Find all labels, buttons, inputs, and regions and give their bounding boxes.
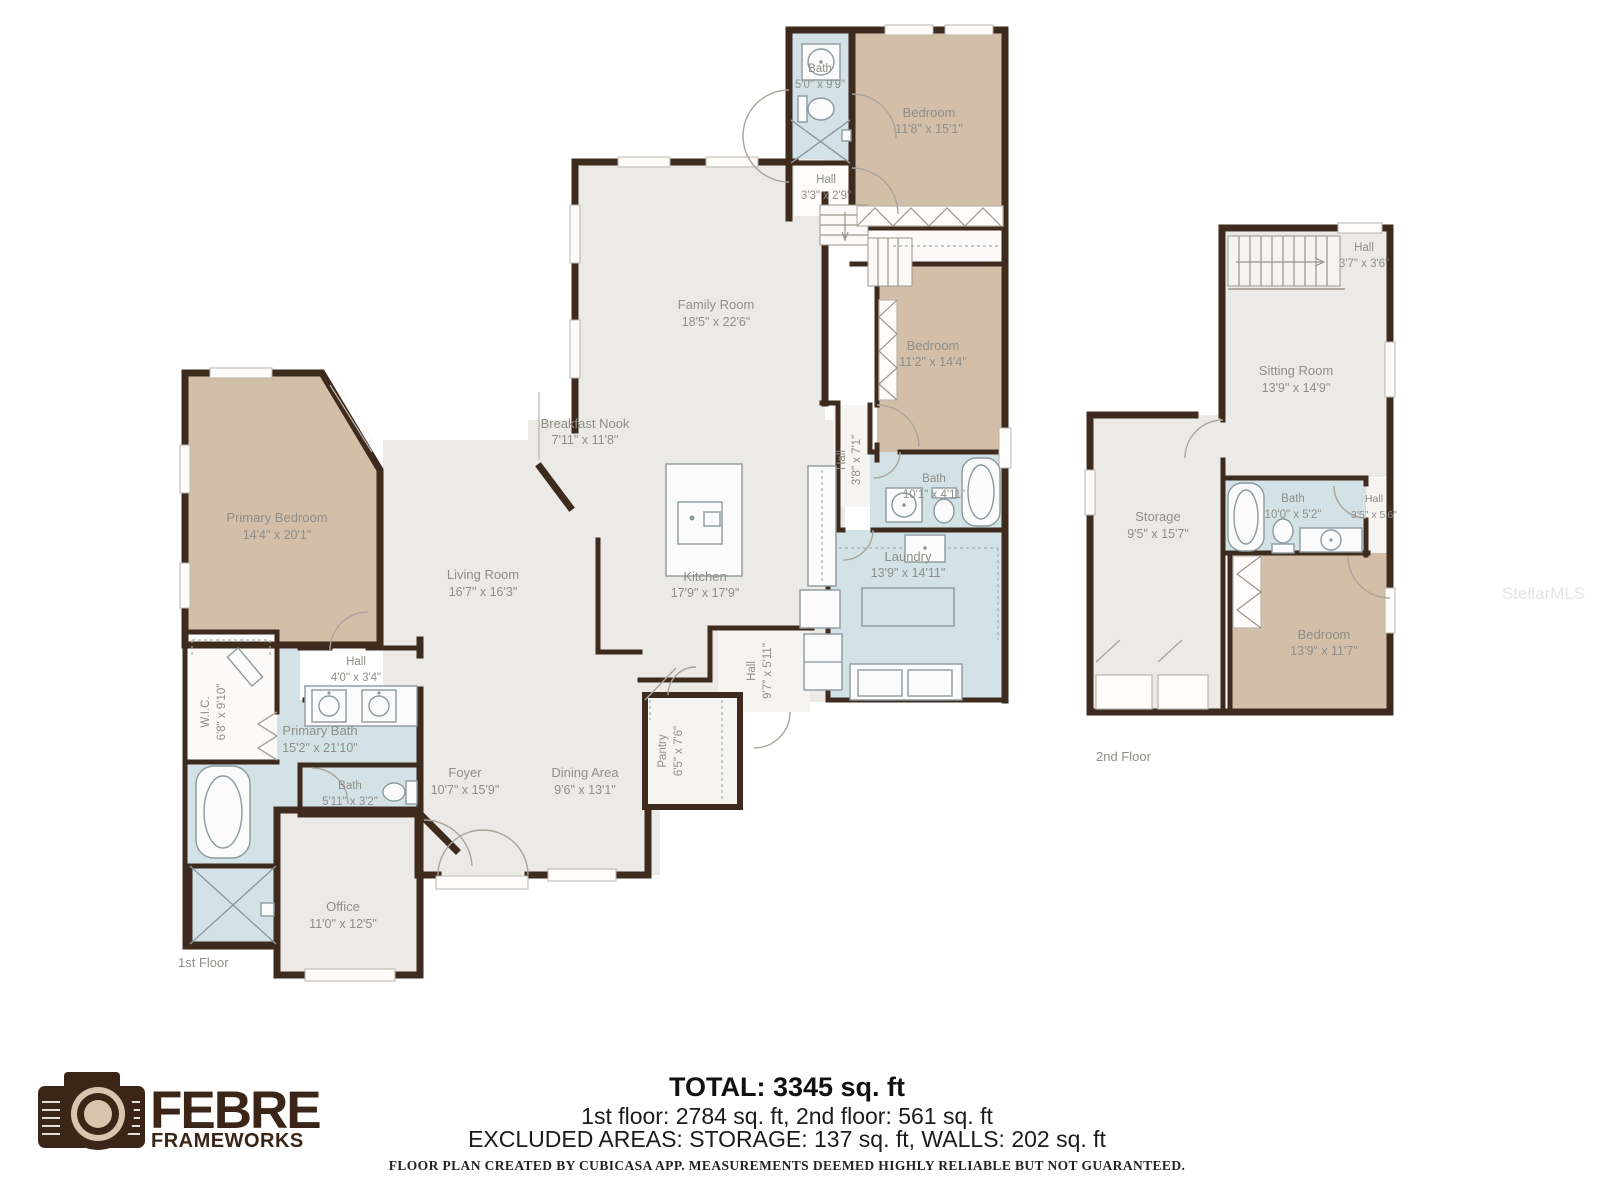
room-label: Dining Area	[551, 765, 619, 780]
double-vanity	[305, 686, 417, 726]
room-dims: 10'0" x 5'2"	[1265, 509, 1322, 521]
room-label: Family Room	[678, 297, 755, 312]
room-label: W.I.C.	[200, 696, 212, 727]
room-dims: 13'9" x 14'11"	[871, 566, 946, 580]
room-dims: 10'1" x 4'11"	[903, 489, 965, 501]
room-dims: 5'0" x 9'9"	[795, 79, 845, 91]
room-dims: 3'3" x 2'9"	[801, 190, 851, 202]
room-label: Bath	[808, 63, 832, 75]
room-dims: 3'5" x 5'6"	[1351, 509, 1397, 521]
room-dims: 5'11" x 3'2"	[322, 796, 378, 808]
room-dims: 17'9" x 17'9"	[671, 586, 740, 600]
room-office	[277, 810, 420, 975]
room-label: Bedroom	[907, 338, 960, 353]
room-label: Storage	[1135, 509, 1181, 524]
room-dims: 11'2" x 14'4"	[899, 355, 967, 369]
total-area-text: TOTAL: 3345 sq. ft	[669, 1072, 905, 1102]
room-dims: 13'9" x 14'9"	[1262, 381, 1331, 395]
room-label: Sitting Room	[1259, 363, 1333, 378]
room-label: Living Room	[447, 567, 519, 582]
room-label: Bath	[1281, 493, 1305, 505]
first-floor-caption: 1st Floor	[178, 955, 229, 970]
summary-footer: TOTAL: 3345 sq. ft 1st floor: 2784 sq. f…	[389, 1072, 1186, 1173]
wardrobe-bedroom-mid	[879, 300, 897, 400]
stairs-second-floor	[1228, 236, 1345, 289]
second-floor-caption: 2nd Floor	[1096, 749, 1152, 764]
room-label: Pantry	[657, 734, 669, 767]
camera-icon	[38, 1072, 145, 1150]
room-label: Hall	[346, 656, 366, 668]
room-label: Bedroom	[903, 105, 956, 120]
room-label: Primary Bedroom	[226, 510, 327, 525]
room-primary-bedroom	[185, 373, 380, 645]
room-dims: 6'8" x 9'10"	[216, 684, 228, 741]
room-dims: 11'0" x 12'5"	[309, 917, 377, 931]
room-dims: 13'9" x 11'7"	[1290, 644, 1358, 658]
wardrobe-bedroom-top	[857, 206, 1003, 226]
stellar-mls-watermark: StellarMLS	[1502, 584, 1585, 603]
room-dims: 4'0" x 3'4"	[331, 672, 381, 684]
room-label: Bedroom	[1298, 627, 1351, 642]
room-dims: 9'6" x 13'1"	[554, 783, 616, 797]
disclaimer-text: FLOOR PLAN CREATED BY CUBICASA APP. MEAS…	[389, 1158, 1186, 1173]
room-dims: 10'7" x 15'9"	[431, 783, 500, 797]
room-label: Office	[326, 899, 360, 914]
room-dims: 15'2" x 21'10"	[282, 741, 358, 755]
room-dims: 6'5" x 7'6"	[673, 726, 685, 776]
room-storage	[1090, 415, 1223, 712]
room-label: Bath	[922, 473, 946, 485]
room-dims: 7'11" x 11'8"	[552, 433, 619, 447]
room-label: Laundry	[885, 549, 932, 564]
toilet-icon	[1272, 544, 1294, 553]
room-label: Hall	[1354, 242, 1374, 254]
appliance-icon	[800, 590, 840, 628]
room-dims: 3'8" x 7'1"	[851, 435, 863, 485]
first-floor-plan: Bath 5'0" x 9'9" Bedroom 11'8" x 15'1" H…	[178, 25, 1011, 981]
room-label: Hall	[836, 450, 848, 470]
room-label: Kitchen	[683, 569, 726, 584]
logo-subname: FRAMEWORKS	[151, 1130, 304, 1152]
room-label: Hall	[816, 174, 836, 186]
room-label: Breakfast Nook	[541, 416, 630, 431]
toilet-icon	[406, 781, 417, 804]
room-label: Hall	[746, 661, 758, 681]
febre-frameworks-logo: FEBRE FRAMEWORKS	[38, 1072, 320, 1152]
room-dims: 3'7" x 3'6"	[1339, 258, 1389, 270]
room-label: Primary Bath	[282, 723, 357, 738]
room-wic	[185, 632, 277, 762]
second-floor-plan: Hall 3'7" x 3'6" Sitting Room 13'9" x 14…	[1085, 223, 1397, 764]
room-label: Foyer	[448, 765, 482, 780]
room-dims: 18'5" x 22'6"	[682, 315, 751, 329]
excluded-areas-text: EXCLUDED AREAS: STORAGE: 137 sq. ft, WAL…	[468, 1126, 1106, 1152]
room-dims: 11'8" x 15'1"	[895, 122, 963, 136]
room-dims: 16'7" x 16'3"	[449, 585, 518, 599]
room-dims: 9'5" x 15'7"	[1127, 527, 1189, 541]
room-dims: 9'7" x 5'11"	[762, 643, 774, 699]
toilet-icon	[798, 96, 807, 122]
room-label: Hall	[1365, 493, 1383, 505]
room-dims: 14'4" x 20'1"	[243, 528, 312, 542]
floor-plan-canvas: Bath 5'0" x 9'9" Bedroom 11'8" x 15'1" H…	[0, 0, 1600, 1200]
room-label: Bath	[338, 780, 362, 792]
